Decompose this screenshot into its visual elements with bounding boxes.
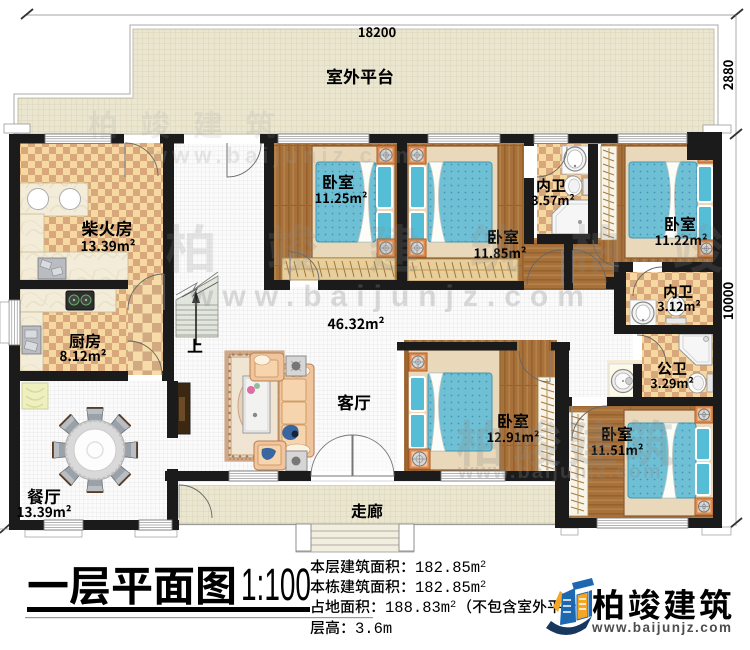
svg-text:www.baijunjz.com: www.baijunjz.com	[591, 620, 733, 635]
svg-text:182.85m: 182.85m	[415, 579, 480, 597]
svg-text:2: 2	[450, 600, 456, 611]
svg-text:www.baijunjz.com: www.baijunjz.com	[149, 143, 420, 168]
svg-text:2: 2	[480, 580, 486, 591]
svg-text:www.baijunjz.com: www.baijunjz.com	[457, 461, 663, 483]
svg-text:2: 2	[480, 560, 486, 571]
svg-text:3.6m: 3.6m	[355, 620, 392, 638]
svg-text:1:100: 1:100	[241, 559, 311, 610]
svg-text:www.baijunjz.com: www.baijunjz.com	[189, 280, 593, 313]
svg-text:188.83m: 188.83m	[385, 599, 450, 617]
svg-text:182.85m: 182.85m	[415, 559, 480, 577]
